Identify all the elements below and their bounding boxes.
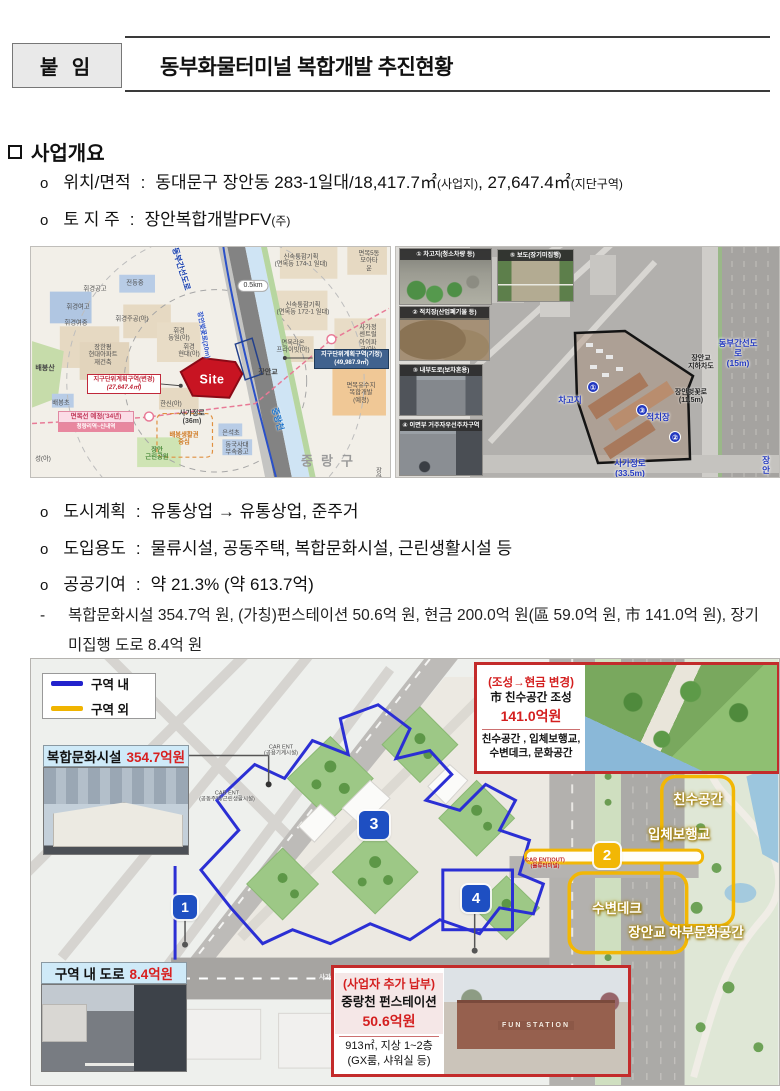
bullet-colon: :: [136, 539, 141, 558]
plan-label: 입체보행교: [648, 827, 710, 843]
location-map: 동부간선도로장안벚꽃로(20m)0.5km신속통합기획 (면목동 174-1 일…: [30, 246, 391, 478]
map-label: 휘경여중: [64, 319, 87, 326]
fun-station-sign: FUN STATION: [498, 1021, 574, 1030]
legend-in-zone: 구역 내: [51, 674, 147, 693]
bullet-marker: o: [40, 175, 48, 192]
sub-bullet-detail: -복합문화시설 354.7억 원, (가칭)펀스테이션 50.6억 원, 현금 …: [68, 601, 770, 661]
photo-caption: ④ 이면부 거주자우선주차구역: [400, 420, 482, 431]
bullet-label: 위치/면적: [63, 173, 130, 192]
legend-in-label: 구역 내: [91, 674, 129, 693]
culture-facility-callout: 복합문화시설 354.7억원: [43, 745, 189, 767]
district-change-area: (27,647.4㎡): [107, 384, 141, 391]
fun-station-title: (사업자 추가 납부): [343, 977, 435, 991]
fun-station-amount: 50.6억원: [362, 1013, 415, 1029]
aerial-label: 차고지: [558, 395, 581, 405]
header-rule-top: [125, 36, 770, 38]
bullet-label: 공공기여: [63, 575, 126, 594]
site-photo-stockyard: ② 적치장(산업폐기물 등): [399, 306, 490, 361]
plan-label: 장안교 하부문화공간: [628, 925, 744, 941]
map-label: 휘경여고: [66, 303, 89, 310]
myeongmok-route: 청량리역~신내역: [58, 423, 134, 432]
master-plan: CAR ENT (공용기계시설)CAR ENT (공동주택/근린생활시설)CAR…: [30, 658, 780, 1086]
section-title: 사업개요: [31, 137, 105, 166]
in-zone-road-amount: 8.4억원: [130, 963, 174, 983]
bullet-uses: o도입용도:물류시설, 공동주택, 복합문화시설, 근린생활시설 등: [40, 534, 512, 559]
bullet-cityplan: o도시계획:유통상업 → 유통상업, 준주거: [40, 497, 359, 522]
map-label: 은석초: [222, 429, 239, 436]
river-park-redbox: (조성→현금 변경) 市 친수공간 조성 141.0억원 친수공간 , 입체보행…: [474, 662, 780, 774]
map-label: 동국사대 부속중고: [225, 442, 248, 457]
culture-facility-render: [43, 767, 189, 855]
aerial-label: 장안벚꽃로 (11.5m): [675, 389, 707, 406]
plan-legend: 구역 내 구역 외: [42, 673, 156, 719]
map-label: 휘경주공(아): [115, 315, 148, 322]
map-label: 배봉생활권 중심: [170, 432, 199, 447]
map-label: 신속통합기획 (면목동 174-1 일대): [275, 254, 328, 269]
page-title: 동부화물터미널 복합개발 추진현황: [160, 51, 453, 81]
river-park-panel: (조성→현금 변경) 市 친수공간 조성 141.0억원 친수공간 , 입체보행…: [477, 665, 585, 771]
fun-station-desc: (GX룸, 샤워실 등): [335, 1054, 443, 1069]
photo-caption: ② 적치장(산업폐기물 등): [400, 307, 489, 318]
photo-caption: ⑤ 보도(장기미집행): [498, 250, 573, 261]
site-photo-backstreet: ④ 이면부 거주자우선주차구역: [399, 419, 483, 476]
sub-text: 복합문화시설 354.7억 원, (가칭)펀스테이션 50.6억 원, 현금 2…: [68, 607, 759, 654]
river-park-render: [585, 665, 777, 771]
divider: [482, 729, 580, 730]
map-label: 휘경공고: [83, 285, 106, 292]
plan-badge-4: 4: [462, 885, 490, 912]
bullet-paren: (지단구역): [571, 177, 623, 191]
myeongmok-title: 면목선 예정('34년): [58, 411, 134, 423]
bullet-label: 도입용도: [63, 539, 126, 558]
district-change-box: 지구단위계획구역(변경) (27,647.4㎡): [87, 374, 161, 394]
bullet-marker: o: [40, 577, 48, 594]
header-rule-bottom: [125, 90, 770, 92]
map-label: 휘경 동일(아): [168, 328, 190, 343]
bullet-colon: :: [130, 210, 135, 229]
map-label: 사가정로 (36m): [179, 410, 205, 427]
site-photo-innerroad: ③ 내부도로(보차혼용): [399, 364, 483, 416]
attachment-box: 붙 임: [12, 43, 122, 88]
bullet-colon: :: [136, 502, 141, 521]
site-photos-and-aerial: ①차고지②적치장③사가정로 (33.5m)동부간선도로 (15m)장안교 지하차…: [395, 246, 780, 478]
district-existing-title: 지구단위계획구역(기정): [315, 351, 388, 359]
aerial-label: 장안교 지하차도: [688, 355, 714, 372]
bullet-contribution: o공공기여:약 21.3% (약 613.7억): [40, 570, 314, 595]
site-photo-depot: ① 차고지(청소차량 등): [399, 248, 492, 305]
divider: [339, 1036, 439, 1037]
plan-badge-1: 1: [173, 895, 197, 919]
bullet-value: 장안복합개발PFV: [144, 210, 271, 229]
plan-label: 친수공간: [673, 792, 723, 808]
culture-facility-amount: 354.7억원: [126, 746, 185, 766]
plan-label: CAR ENT (공용기계시설): [264, 745, 298, 758]
section-overview: 사업개요: [8, 137, 105, 166]
map-label: Site: [200, 373, 225, 388]
bullet-value: 물류시설, 공동주택, 복합문화시설, 근린생활시설 등: [151, 539, 513, 558]
map-label: 장안교: [258, 369, 277, 377]
bullet-marker: o: [40, 504, 48, 521]
map-label: 중랑구: [301, 453, 361, 468]
map-label: 면목5동 모아타운: [359, 250, 380, 272]
culture-facility-name: 복합문화시설: [47, 746, 122, 766]
river-park-title: (조성→현금 변경): [478, 676, 584, 691]
bullet-location-area: o위치/면적:동대문구 장안동 283-1일대/18,417.7㎡(사업지), …: [40, 168, 623, 193]
photo-caption: ③ 내부도로(보차혼용): [400, 365, 482, 376]
aerial-label: ①: [587, 381, 599, 393]
district-existing-area: (49,987.9㎡): [334, 359, 368, 366]
river-park-subtitle: 市 친수공간 조성: [478, 691, 584, 706]
map-label: 휘경 현대(아): [178, 344, 200, 359]
bullet-marker: o: [40, 212, 48, 229]
bullet-paren: (사업지): [437, 177, 478, 191]
map-label: 성(아): [35, 455, 51, 462]
bullet-label: 토 지 주: [63, 210, 119, 229]
district-change-title: 지구단위계획구역(변경): [88, 376, 160, 384]
aerial-label: 적치장: [646, 412, 669, 422]
plan-label: CAR ENT (공동주택/근린생활시설): [199, 791, 255, 804]
map-label: 한신(아): [160, 400, 182, 407]
fun-station-building: FUN STATION: [457, 1000, 615, 1049]
map-label: 장안: [374, 468, 385, 478]
plan-badge-2: 2: [594, 843, 620, 868]
fun-station-redbox: (사업자 추가 납부) 중랑천 펀스테이션 50.6억원 913㎡, 지상 1~…: [331, 965, 631, 1077]
aerial-label: ②: [669, 431, 681, 443]
legend-out-label: 구역 외: [91, 699, 129, 718]
river-park-amount: 141.0억원: [478, 706, 584, 727]
bullet-value: 동대문구 장안동 283-1일대/18,417.7㎡: [155, 173, 437, 192]
map-label: 전동중: [126, 279, 143, 286]
map-label: 신속통합기획 (면목동 172-1 일대): [277, 302, 330, 317]
site-photo-sidewalk: ⑤ 보도(장기미집행): [497, 249, 574, 302]
bullet-paren: (주): [271, 214, 290, 228]
map-label: 중랑천: [270, 406, 286, 431]
bullet-value: 약 21.3% (약 613.7억): [151, 575, 314, 594]
bullet-label: 도시계획: [63, 502, 126, 521]
in-zone-road-render: [41, 984, 187, 1072]
district-existing-box: 지구단위계획구역(기정) (49,987.9㎡): [314, 349, 389, 369]
document-page: 붙 임 동부화물터미널 복합개발 추진현황 사업개요 o위치/면적:동대문구 장…: [0, 0, 780, 1091]
bullet-landowner: o토 지 주:장안복합개발PFV(주): [40, 205, 290, 230]
section-square-icon: [8, 145, 22, 159]
map-label: 면목라온 프라이빗(아): [276, 340, 309, 355]
bullet-value: , 27,647.4㎡: [478, 173, 571, 192]
attachment-label: 붙 임: [40, 51, 94, 80]
aerial-label: 장안: [759, 455, 774, 475]
plan-label: 수변데크: [592, 901, 642, 917]
plan-badge-3: 3: [359, 811, 389, 839]
river-park-desc: 친수공간 , 입체보행교,: [478, 732, 584, 746]
aerial-label: 동부간선도로 (15m): [717, 338, 760, 368]
map-label: 장안벚꽃로(20m): [195, 311, 211, 359]
in-zone-road-callout: 구역 내 도로 8.4억원: [41, 962, 187, 984]
aerial-label: ③: [636, 404, 648, 416]
bullet-value: 유통상업 → 유통상업, 준주거: [151, 502, 359, 521]
fun-station-subtitle: 중랑천 펀스테이션: [341, 995, 436, 1009]
map-label: 배봉산: [35, 365, 54, 373]
fun-station-desc: 913㎡, 지상 1~2층: [335, 1039, 443, 1054]
photo-caption: ① 차고지(청소차량 등): [400, 249, 491, 260]
fun-station-render: FUN STATION: [444, 968, 628, 1074]
bullet-colon: :: [136, 575, 141, 594]
myeongmok-line-box: 면목선 예정('34년) 청량리역~신내역: [58, 411, 134, 432]
bullet-marker: o: [40, 541, 48, 558]
aerial-label: 사가정로 (33.5m): [614, 458, 645, 478]
bullet-colon: :: [141, 173, 146, 192]
plan-label: CAR ENT(OUT) (물류터미널): [525, 858, 565, 871]
sub-dash: -: [40, 601, 45, 631]
legend-in-swatch: [51, 681, 83, 686]
in-zone-road-name: 구역 내 도로: [55, 963, 125, 983]
map-label: 0.5km: [237, 280, 268, 292]
map-label: 장한평 현대아파트 재건축: [89, 344, 118, 366]
fun-station-panel: (사업자 추가 납부) 중랑천 펀스테이션 50.6억원 913㎡, 지상 1~…: [334, 968, 444, 1074]
map-label: 장안 근린공원: [145, 447, 168, 462]
legend-out-zone: 구역 외: [51, 699, 147, 718]
map-label: 동부간선도로: [170, 246, 192, 291]
map-label: 면목유수지 복합개발 (예정): [347, 382, 376, 404]
legend-out-swatch: [51, 706, 83, 711]
map-label: 배봉초: [52, 399, 69, 406]
river-park-desc: 수변데크, 문화공간: [478, 746, 584, 760]
